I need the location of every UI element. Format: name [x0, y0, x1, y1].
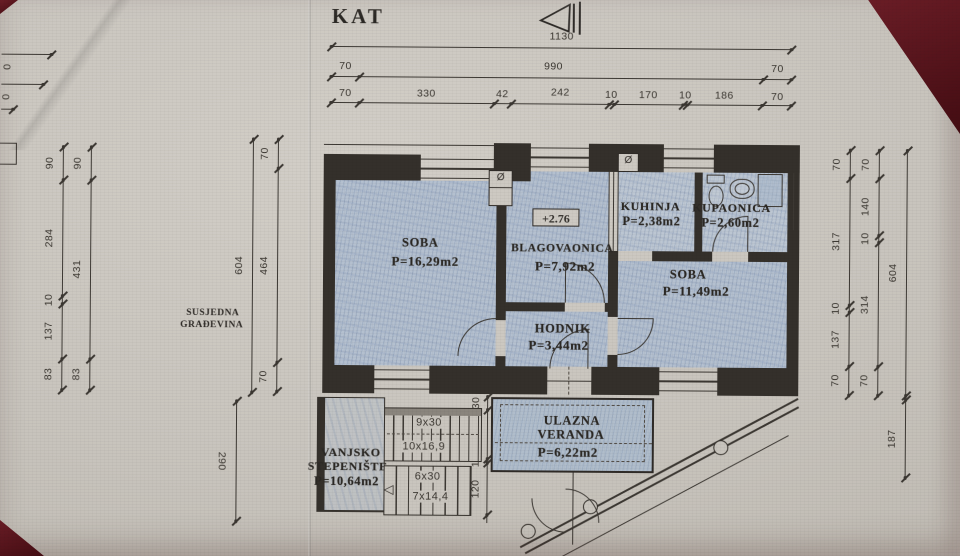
dim-label: 10	[859, 232, 871, 245]
tick-mark	[873, 237, 885, 249]
tick-mark	[84, 353, 96, 365]
wall-partition	[652, 251, 712, 261]
dim-label: 90	[44, 157, 56, 170]
tick-mark	[272, 163, 284, 175]
scanned-floor-plan-photo: KAT 1130 70 990 70 70 330 42 242 10 170 …	[0, 0, 960, 556]
tick-mark	[843, 307, 855, 319]
tick-mark	[902, 145, 914, 157]
room-area: P=7,92m2	[535, 258, 595, 274]
dim-label: 10	[43, 294, 55, 307]
stair-label: 10x16,9	[399, 440, 448, 452]
dim-line-right-below	[905, 400, 907, 478]
neighbor-label: GRAĐEVINA	[180, 320, 243, 330]
tick-mark	[844, 173, 856, 185]
dim-line-total	[332, 46, 792, 51]
dim-label: 290	[216, 452, 228, 471]
dim-label: 317	[830, 232, 842, 251]
dim-line-stairs	[486, 397, 488, 523]
wall-segment	[591, 367, 659, 395]
dim-label: 70	[829, 374, 841, 387]
room-name: BLAGOVAONICA	[511, 242, 613, 255]
room-area: P=2,38m2	[622, 214, 680, 229]
dim-line-right-total	[905, 151, 908, 396]
dim-line-left-wall	[276, 140, 279, 392]
dim-label: 1130	[550, 30, 574, 42]
chimney-flue: Ø	[618, 153, 639, 172]
tick-mark	[56, 298, 68, 310]
dim-label: 42	[496, 88, 509, 100]
room-name: KUPAONICA	[692, 200, 771, 216]
neighbor-label: SUSJEDNA	[186, 308, 239, 318]
toilet-tank	[707, 175, 725, 184]
window	[664, 148, 714, 168]
dim-line-detail	[331, 102, 791, 107]
tick-mark	[325, 71, 337, 83]
tick-mark	[84, 384, 96, 396]
tick-mark	[757, 74, 769, 86]
tick-mark	[46, 49, 58, 61]
tick-mark	[7, 103, 19, 115]
room-name: SOBA	[402, 235, 439, 250]
tick-mark	[900, 394, 912, 406]
tick-mark	[785, 74, 797, 86]
dim-label: 0	[0, 94, 12, 100]
window	[659, 371, 717, 391]
wall-segment	[429, 366, 547, 395]
stair-edge-band	[385, 408, 481, 416]
sink-basin	[735, 183, 750, 195]
room-area: P=16,29m2	[391, 253, 458, 269]
tick-mark	[56, 384, 68, 396]
dim-label: 137	[43, 322, 55, 341]
dim-label: 170	[639, 89, 658, 101]
stair-label: 7x14,4	[409, 491, 451, 503]
dim-label: 70	[831, 158, 843, 171]
dim-label: 604	[233, 256, 245, 275]
dim-line-left-total	[251, 139, 254, 392]
stair-direction-arrow-icon: ◁	[383, 481, 393, 497]
tick-mark	[85, 174, 97, 186]
tick-mark	[872, 361, 884, 373]
room-name: HODNIK	[535, 321, 591, 336]
dim-line-left-below	[235, 401, 237, 521]
wall-partition	[605, 303, 618, 312]
dim-label: 70	[771, 63, 784, 75]
dim-label: 70	[339, 87, 352, 99]
elevation-marker: +2.76	[532, 208, 579, 226]
dim-line-mid	[331, 76, 791, 81]
dim-label: 464	[258, 256, 270, 275]
door-leaf	[618, 318, 654, 320]
tick-mark	[845, 145, 857, 157]
dim-label: 70	[858, 374, 870, 387]
dim-label: 0	[1, 64, 13, 70]
tick-mark	[843, 361, 855, 373]
tick-mark	[246, 386, 258, 398]
fragment-outline	[0, 143, 17, 165]
tick-mark	[899, 472, 911, 484]
dim-label: 137	[830, 330, 842, 349]
dim-label: 70	[771, 91, 784, 103]
room-name: KUHINJA	[621, 199, 681, 214]
window	[421, 159, 497, 180]
wall-partition	[748, 252, 799, 262]
tick-mark	[786, 44, 798, 56]
door-axis	[568, 367, 569, 395]
wall-left	[322, 154, 336, 393]
tick-mark	[873, 173, 885, 185]
dim-label: 70	[257, 370, 269, 383]
tick-mark	[58, 141, 70, 153]
tick-mark	[353, 71, 365, 83]
window	[531, 147, 589, 167]
elevation-value: +2.76	[542, 211, 570, 225]
room-area: P=11,49m2	[663, 283, 730, 299]
tick-mark	[231, 395, 243, 407]
flue-symbol: Ø	[490, 172, 512, 183]
tick-mark	[874, 145, 886, 157]
dim-label: 70	[860, 158, 872, 171]
stair-flight-upper	[384, 407, 482, 462]
fragment-dim-line	[1, 84, 43, 86]
tick-mark	[756, 100, 768, 112]
wall-partition	[495, 356, 505, 366]
floor-plan-drawing: KAT 1130 70 990 70 70 330 42 242 10 170 …	[0, 0, 960, 556]
dim-label: 314	[859, 295, 871, 314]
tick-mark	[353, 97, 365, 109]
chimney-flue: Ø	[489, 170, 513, 206]
dim-label: 83	[70, 368, 82, 381]
flue-symbol: Ø	[619, 155, 638, 166]
wall-partition	[496, 302, 565, 311]
room-area: P=3,44m2	[528, 337, 588, 353]
glazed-partition	[608, 172, 619, 251]
tick-mark	[86, 141, 98, 153]
dim-label: 284	[43, 229, 55, 248]
dim-label: 330	[417, 88, 436, 100]
wall-segment	[322, 365, 374, 393]
tick-mark	[872, 390, 884, 402]
tick-mark	[37, 79, 49, 91]
dim-label: 990	[544, 60, 563, 72]
room-name: STEPENIŠTE	[308, 459, 388, 475]
dim-label: 10	[605, 89, 618, 101]
room-name: SOBA	[670, 267, 707, 282]
dim-label: 90	[72, 157, 84, 170]
tick-mark	[843, 390, 855, 402]
tick-mark	[56, 353, 68, 365]
gate-door-arc	[531, 498, 565, 532]
flue-divider	[490, 187, 512, 188]
railing-post	[521, 524, 536, 539]
dim-label: 431	[71, 260, 83, 279]
dim-line-right-mid	[877, 151, 880, 396]
tick-mark	[271, 357, 283, 369]
tick-mark	[325, 97, 337, 109]
tick-mark	[273, 134, 285, 146]
dim-label: 70	[259, 147, 271, 160]
tick-mark	[230, 515, 242, 527]
dim-label: 187	[886, 429, 898, 448]
dim-label: 10	[679, 89, 692, 101]
wall-segment	[324, 154, 421, 181]
room-area: P=6,22m2	[538, 444, 598, 460]
dim-label: 10	[830, 302, 842, 315]
stair-label: 6x30	[412, 471, 444, 483]
dim-line-left-inner	[89, 147, 92, 390]
stair-walk-line	[387, 433, 479, 435]
dim-label: 70	[339, 60, 352, 72]
tick-mark	[326, 41, 338, 53]
tick-mark	[57, 174, 69, 186]
tick-mark	[481, 509, 493, 521]
eaves-line	[324, 144, 497, 146]
fragment-dim-line	[1, 109, 13, 110]
tick-mark	[248, 133, 260, 145]
dim-line-left-outer	[61, 147, 64, 390]
dim-line-right-inner	[848, 151, 851, 396]
dim-label: 83	[42, 368, 54, 381]
gate-door-arc	[565, 489, 599, 523]
dim-label: 186	[715, 90, 734, 102]
dim-label: 604	[887, 263, 899, 282]
tick-mark	[271, 386, 283, 398]
dim-label: 140	[859, 197, 871, 216]
railing-post	[713, 440, 728, 455]
wall-segment	[717, 368, 798, 397]
tick-mark	[785, 100, 797, 112]
window	[787, 173, 799, 230]
plan-title: KAT	[332, 4, 385, 29]
dim-label: 242	[551, 86, 570, 98]
wall-partition	[607, 355, 617, 367]
stair-label: 9x30	[413, 417, 445, 429]
fragment-dim-line	[2, 54, 52, 56]
room-area: P=10,64m2	[314, 474, 379, 489]
room-name: VERANDA	[538, 427, 605, 442]
window	[374, 369, 429, 389]
room-area: P=2,60m2	[701, 216, 759, 231]
